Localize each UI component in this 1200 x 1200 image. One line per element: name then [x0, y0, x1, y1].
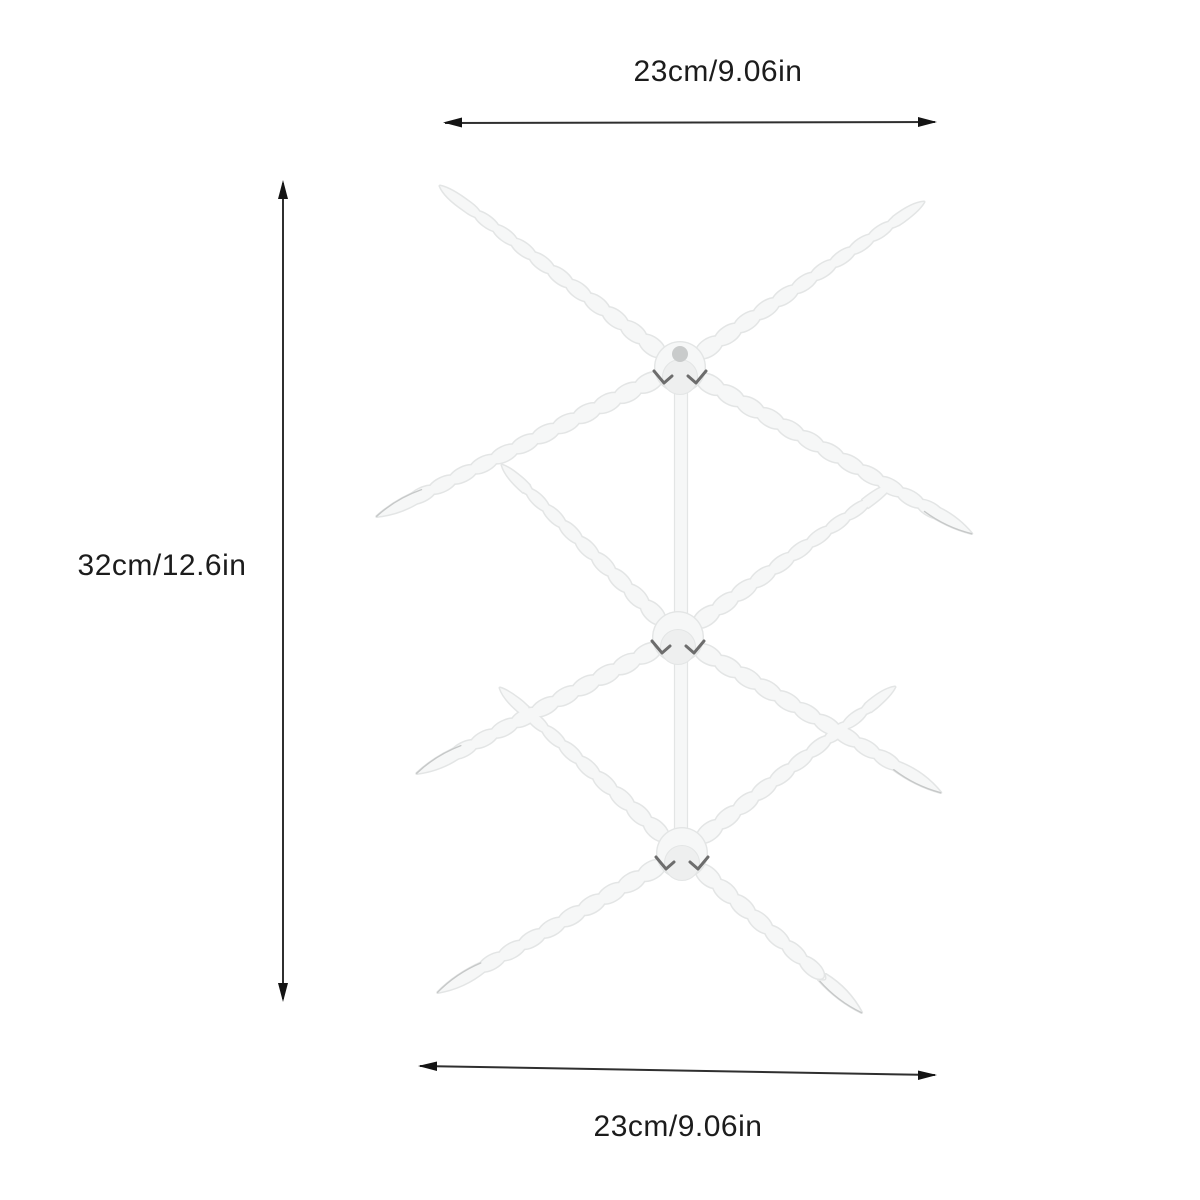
top-width-arrow-left-icon	[443, 118, 462, 128]
bottom-width-arrow-right-icon	[918, 1071, 937, 1081]
top-width-dimension: 23cm/9.06in	[443, 55, 937, 128]
drying-rack-illustration	[373, 179, 976, 1018]
rack-arm	[671, 628, 945, 799]
top-width-label: 23cm/9.06in	[634, 55, 803, 88]
bottom-width-line	[420, 1066, 935, 1075]
rack-arm	[673, 358, 976, 540]
top-width-line	[445, 122, 935, 123]
height-label: 32cm/12.6in	[78, 549, 247, 582]
bottom-width-label: 23cm/9.06in	[594, 1110, 763, 1143]
rack-arm	[434, 844, 689, 1000]
rack-arm	[496, 459, 686, 645]
rack-arm	[674, 845, 867, 1019]
height-arrow-top-icon	[278, 180, 288, 199]
product-dimension-diagram: 23cm/9.06in 32cm/12.6in 23cm/9.06in	[0, 0, 1200, 1200]
rack-arm	[413, 628, 685, 781]
bottom-width-dimension: 23cm/9.06in	[418, 1062, 937, 1144]
rack-arm	[673, 195, 929, 376]
rack-arm	[435, 179, 688, 375]
rack-arm	[671, 477, 898, 645]
hub-hole	[672, 346, 688, 362]
bottom-width-arrow-left-icon	[418, 1062, 437, 1072]
rack-arm	[494, 682, 689, 861]
top-width-arrow-right-icon	[918, 117, 937, 127]
height-dimension: 32cm/12.6in	[78, 180, 288, 1002]
height-arrow-bottom-icon	[278, 983, 288, 1002]
